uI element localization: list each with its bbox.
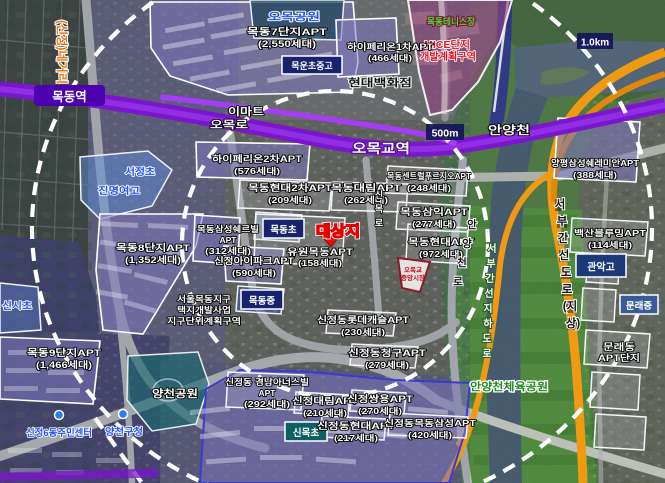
svg-text:서: 서 — [487, 242, 496, 255]
svg-text:오목로: 오목로 — [210, 119, 248, 131]
svg-text:하이페리온1차APT: 하이페리온1차APT — [347, 41, 434, 52]
svg-text:목동삼익APT: 목동삼익APT — [400, 206, 469, 217]
svg-text:부: 부 — [486, 258, 495, 270]
svg-text:상): 상) — [566, 316, 581, 330]
svg-text:(210세대): (210세대) — [303, 408, 347, 418]
svg-text:목동초: 목동초 — [270, 224, 296, 236]
svg-text:(230세대): (230세대) — [341, 327, 385, 337]
svg-text:하이페리온2차APT: 하이페리온2차APT — [212, 153, 303, 164]
svg-text:신정동목동삼성APT: 신정동목동삼성APT — [384, 418, 477, 428]
svg-text:천: 천 — [457, 256, 467, 269]
svg-text:현대백화점: 현대백화점 — [348, 76, 412, 89]
svg-text:지구단위계획구역: 지구단위계획구역 — [167, 316, 241, 326]
svg-text:백산블루밍APT: 백산블루밍APT — [574, 228, 647, 238]
svg-text:문래중: 문래중 — [626, 300, 652, 312]
svg-text:이마트: 이마트 — [228, 105, 264, 118]
svg-text:APT단지: APT단지 — [598, 352, 640, 363]
svg-text:(지: (지 — [563, 299, 577, 313]
svg-text:(158세대): (158세대) — [298, 258, 342, 268]
svg-text:오목공원: 오목공원 — [268, 10, 320, 23]
svg-text:(114세대): (114세대) — [588, 240, 632, 250]
svg-text:목동센트럴푸르지오APT: 목동센트럴푸르지오APT — [387, 171, 472, 181]
svg-text:목운초중고: 목운초중고 — [291, 61, 332, 71]
svg-text:(388세대): (388세대) — [573, 170, 617, 180]
svg-text:목동9단지APT: 목동9단지APT — [27, 347, 101, 359]
svg-text:서정초: 서정초 — [125, 166, 155, 178]
svg-text:목동7단지APT: 목동7단지APT — [247, 26, 327, 38]
svg-text:지: 지 — [483, 302, 492, 315]
svg-text:신정6동주민센터: 신정6동주민센터 — [26, 427, 92, 439]
svg-text:오목교역: 오목교역 — [352, 141, 410, 156]
svg-text:로: 로 — [482, 348, 491, 360]
svg-text:선: 선 — [559, 248, 570, 262]
svg-text:목동삼성쉐르빌: 목동삼성쉐르빌 — [197, 224, 259, 234]
svg-text:중앙시장: 중앙시장 — [401, 273, 425, 282]
svg-text:(1,466세대): (1,466세대) — [36, 359, 92, 370]
svg-text:(277세대): (277세대) — [412, 219, 456, 229]
svg-text:(217세대): (217세대) — [334, 433, 378, 443]
svg-text:신목초: 신목초 — [293, 427, 319, 439]
svg-text:신정쌍용APT: 신정쌍용APT — [347, 393, 414, 404]
svg-text:하: 하 — [483, 317, 493, 330]
svg-text:목동역: 목동역 — [52, 89, 87, 104]
svg-text:(420세대): (420세대) — [408, 430, 452, 440]
svg-text:신정동청구APT: 신정동청구APT — [348, 347, 427, 358]
svg-text:안양천: 안양천 — [488, 123, 530, 137]
svg-text:로: 로 — [453, 276, 463, 288]
svg-text:(576세대): (576세대) — [234, 166, 280, 176]
svg-text:선: 선 — [484, 287, 493, 300]
svg-text:(466세대): (466세대) — [368, 53, 412, 63]
svg-text:500m: 500m — [432, 128, 459, 140]
svg-text:관악고: 관악고 — [587, 261, 615, 274]
svg-text:APT: APT — [259, 388, 277, 398]
svg-text:서: 서 — [555, 197, 566, 211]
svg-text:안: 안 — [467, 218, 477, 231]
svg-text:부: 부 — [557, 215, 568, 228]
svg-text:양: 양 — [462, 238, 472, 250]
svg-text:APT: APT — [220, 235, 238, 245]
svg-text:(248세대): (248세대) — [407, 183, 451, 193]
svg-text:목: 목 — [375, 204, 383, 214]
svg-text:오목교: 오목교 — [404, 265, 422, 274]
svg-text:(1,352세대): (1,352세대) — [125, 254, 181, 265]
svg-text:목동중: 목동중 — [249, 296, 275, 307]
svg-text:신정동 경남아너스빌: 신정동 경남아너스빌 — [225, 377, 309, 387]
svg-text:간: 간 — [558, 231, 569, 245]
svg-text:목동8단지APT: 목동8단지APT — [116, 242, 190, 254]
svg-text:대상지: 대상지 — [316, 223, 360, 240]
svg-text:양천공원: 양천공원 — [152, 387, 198, 400]
svg-text:목동테니스장: 목동테니스장 — [427, 16, 475, 28]
svg-text:도: 도 — [561, 266, 572, 279]
svg-text:양천구청: 양천구청 — [105, 426, 143, 438]
svg-text:로: 로 — [562, 283, 573, 296]
svg-text:신정동롯데캐슬APT: 신정동롯데캐슬APT — [317, 314, 410, 325]
svg-text:1.0km: 1.0km — [581, 38, 609, 49]
svg-text:유원목동APT: 유원목동APT — [287, 246, 354, 257]
svg-text:도: 도 — [482, 333, 491, 345]
svg-text:신정아이파크APT: 신정아이파크APT — [214, 255, 295, 266]
svg-text:목동현대2차APT: 목동현대2차APT — [248, 182, 333, 193]
svg-text:안양천체육공원: 안양천체육공원 — [470, 380, 548, 393]
svg-text:(2,550세대): (2,550세대) — [258, 38, 316, 49]
svg-text:신시초: 신시초 — [2, 300, 32, 312]
svg-text:(279세대): (279세대) — [365, 360, 409, 370]
svg-text:(270세대): (270세대) — [358, 406, 402, 416]
svg-text:(312세대): (312세대) — [205, 246, 251, 256]
svg-text:간: 간 — [485, 272, 495, 285]
svg-text:목동대림APT: 목동대림APT — [331, 182, 402, 193]
svg-text:(292세대): (292세대) — [244, 399, 290, 409]
svg-text:(신정)네거리: (신정)네거리 — [55, 20, 69, 84]
svg-text:문래동: 문래동 — [603, 341, 635, 352]
svg-text:서울목동지구: 서울목동지구 — [177, 294, 231, 304]
svg-text:로: 로 — [375, 218, 384, 228]
svg-text:신: 신 — [375, 189, 383, 200]
svg-text:(209세대): (209세대) — [268, 195, 312, 205]
svg-text:양평삼성쉐레미안APT: 양평삼성쉐레미안APT — [551, 158, 640, 168]
svg-text:(590세대): (590세대) — [232, 268, 276, 278]
svg-text:택지개발사업: 택지개발사업 — [177, 305, 231, 315]
svg-text:진명여고: 진명여고 — [98, 185, 140, 197]
